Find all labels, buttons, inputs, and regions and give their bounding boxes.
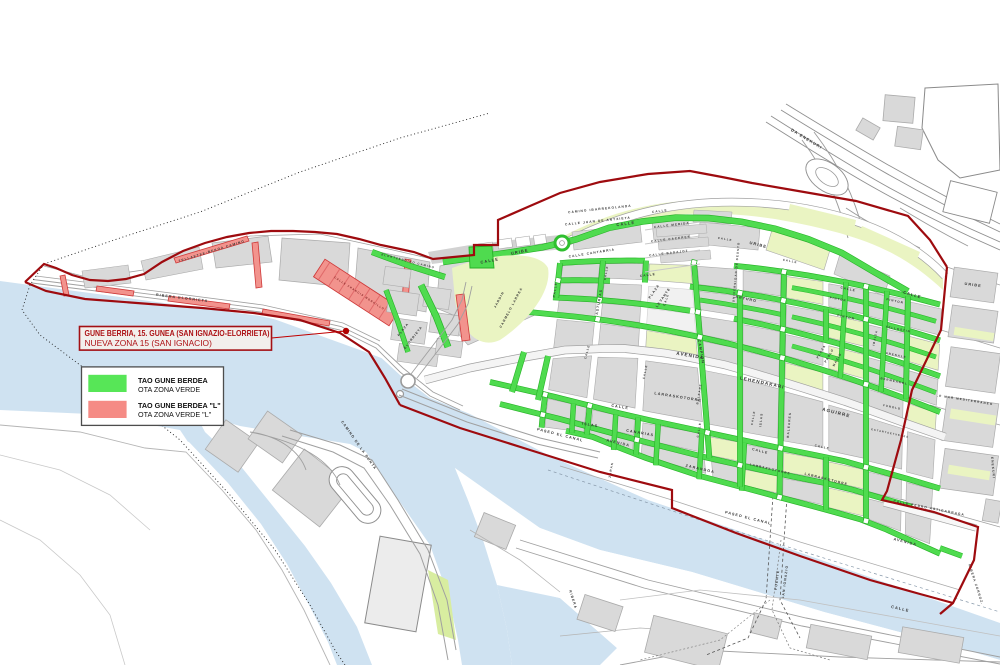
svg-text:GUNE BERRIA, 15. GUNEA (SAN IG: GUNE BERRIA, 15. GUNEA (SAN IGNAZIO-ELOR… bbox=[85, 328, 270, 338]
svg-text:NUEVA ZONA 15 (SAN IGNACIO): NUEVA ZONA 15 (SAN IGNACIO) bbox=[85, 338, 213, 348]
svg-text:OTA ZONA VERDE: OTA ZONA VERDE bbox=[138, 385, 200, 394]
svg-text:TAO GUNE BERDEA: TAO GUNE BERDEA bbox=[138, 376, 208, 385]
svg-text:TAO GUNE BERDEA "L": TAO GUNE BERDEA "L" bbox=[138, 401, 221, 410]
svg-text:OTA ZONA VERDE "L": OTA ZONA VERDE "L" bbox=[138, 410, 212, 419]
